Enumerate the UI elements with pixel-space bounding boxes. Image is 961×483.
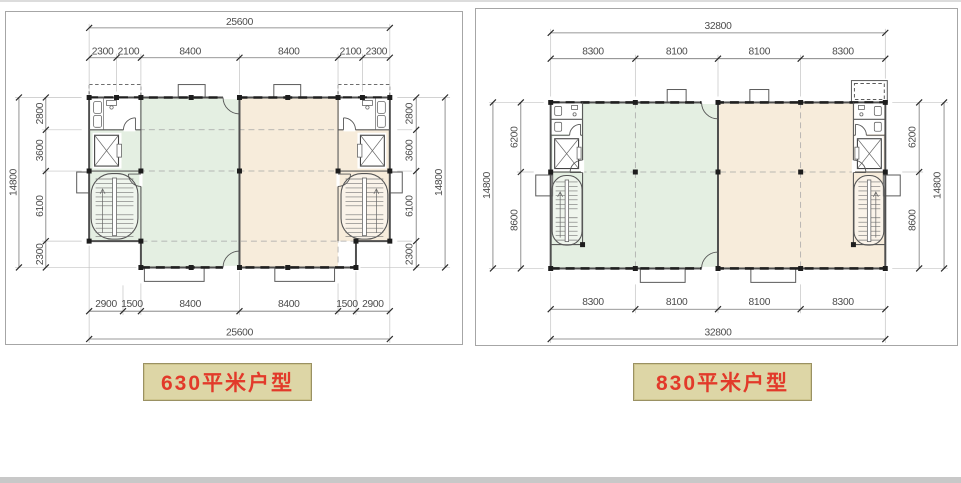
dim-label: 6100 [35, 195, 46, 217]
dimensions-left: 14800 6200 8600 [482, 99, 524, 271]
dim-label: 3600 [405, 139, 416, 161]
dim-label: 8100 [749, 47, 771, 58]
dim-label: 2900 [362, 299, 384, 310]
floor-plan-panel-630: 25600 2300 2100 8400 8400 2100 2300 2900… [5, 11, 463, 345]
dim-label: 14800 [8, 168, 19, 196]
dim-label: 2300 [366, 47, 388, 58]
dimensions-right: 6200 8600 14800 [908, 99, 947, 271]
dim-label: 32800 [704, 328, 732, 339]
dim-label: 6200 [908, 126, 919, 148]
dimensions-left: 14800 2800 3600 6100 2300 [8, 95, 48, 271]
dim-label: 25600 [226, 17, 254, 28]
dim-label: 2800 [35, 102, 46, 124]
floor-plan-panel-830: 32800 8300 8100 8100 8300 8300 8100 8100… [475, 8, 958, 346]
dim-label: 8400 [179, 299, 201, 310]
dim-label: 8300 [582, 297, 604, 308]
dim-label: 3600 [35, 139, 46, 161]
dim-label: 8100 [666, 297, 688, 308]
dim-label: 8300 [582, 47, 604, 58]
dim-label: 8300 [832, 47, 854, 58]
dim-label: 6100 [405, 195, 416, 217]
plan-title-text: 630平米户型 [161, 367, 294, 397]
dim-label: 8100 [749, 297, 771, 308]
dim-label: 8100 [666, 47, 688, 58]
floor-plan-comparison-page: { "page": { "background": "#ffffff", "to… [0, 0, 961, 483]
dim-label: 32800 [704, 21, 732, 32]
dim-label: 2300 [35, 243, 46, 265]
plan-title-630: 630平米户型 [143, 363, 312, 401]
dim-label: 6200 [509, 126, 520, 148]
floor-plan-drawing-630: 25600 2300 2100 8400 8400 2100 2300 2900… [6, 12, 462, 344]
dim-label: 25600 [226, 328, 254, 339]
dim-label: 8600 [509, 209, 520, 231]
dim-label: 1500 [121, 299, 143, 310]
dim-label: 2300 [405, 243, 416, 265]
dim-label: 8600 [908, 209, 919, 231]
dim-label: 14800 [482, 171, 493, 199]
dim-label: 14800 [933, 171, 944, 199]
dim-label: 1500 [336, 299, 358, 310]
dim-label: 8400 [179, 47, 201, 58]
floor-plan-drawing-830: 32800 8300 8100 8100 8300 8300 8100 8100… [476, 9, 957, 345]
bottom-border-bar [0, 477, 961, 483]
plan-title-text: 830平米户型 [656, 367, 789, 397]
dim-label: 2800 [405, 102, 416, 124]
dim-label: 2900 [95, 299, 117, 310]
plan-title-830: 830平米户型 [633, 363, 812, 401]
dim-label: 8400 [278, 299, 300, 310]
dimensions-right: 2800 3600 6100 2300 14800 [405, 95, 448, 271]
dim-label: 14800 [434, 168, 445, 196]
dim-label: 8400 [278, 47, 300, 58]
dim-label: 2100 [118, 47, 140, 58]
top-border-line [0, 0, 961, 2]
dim-label: 2300 [92, 47, 114, 58]
dim-label: 2100 [340, 47, 362, 58]
dim-label: 8300 [832, 297, 854, 308]
